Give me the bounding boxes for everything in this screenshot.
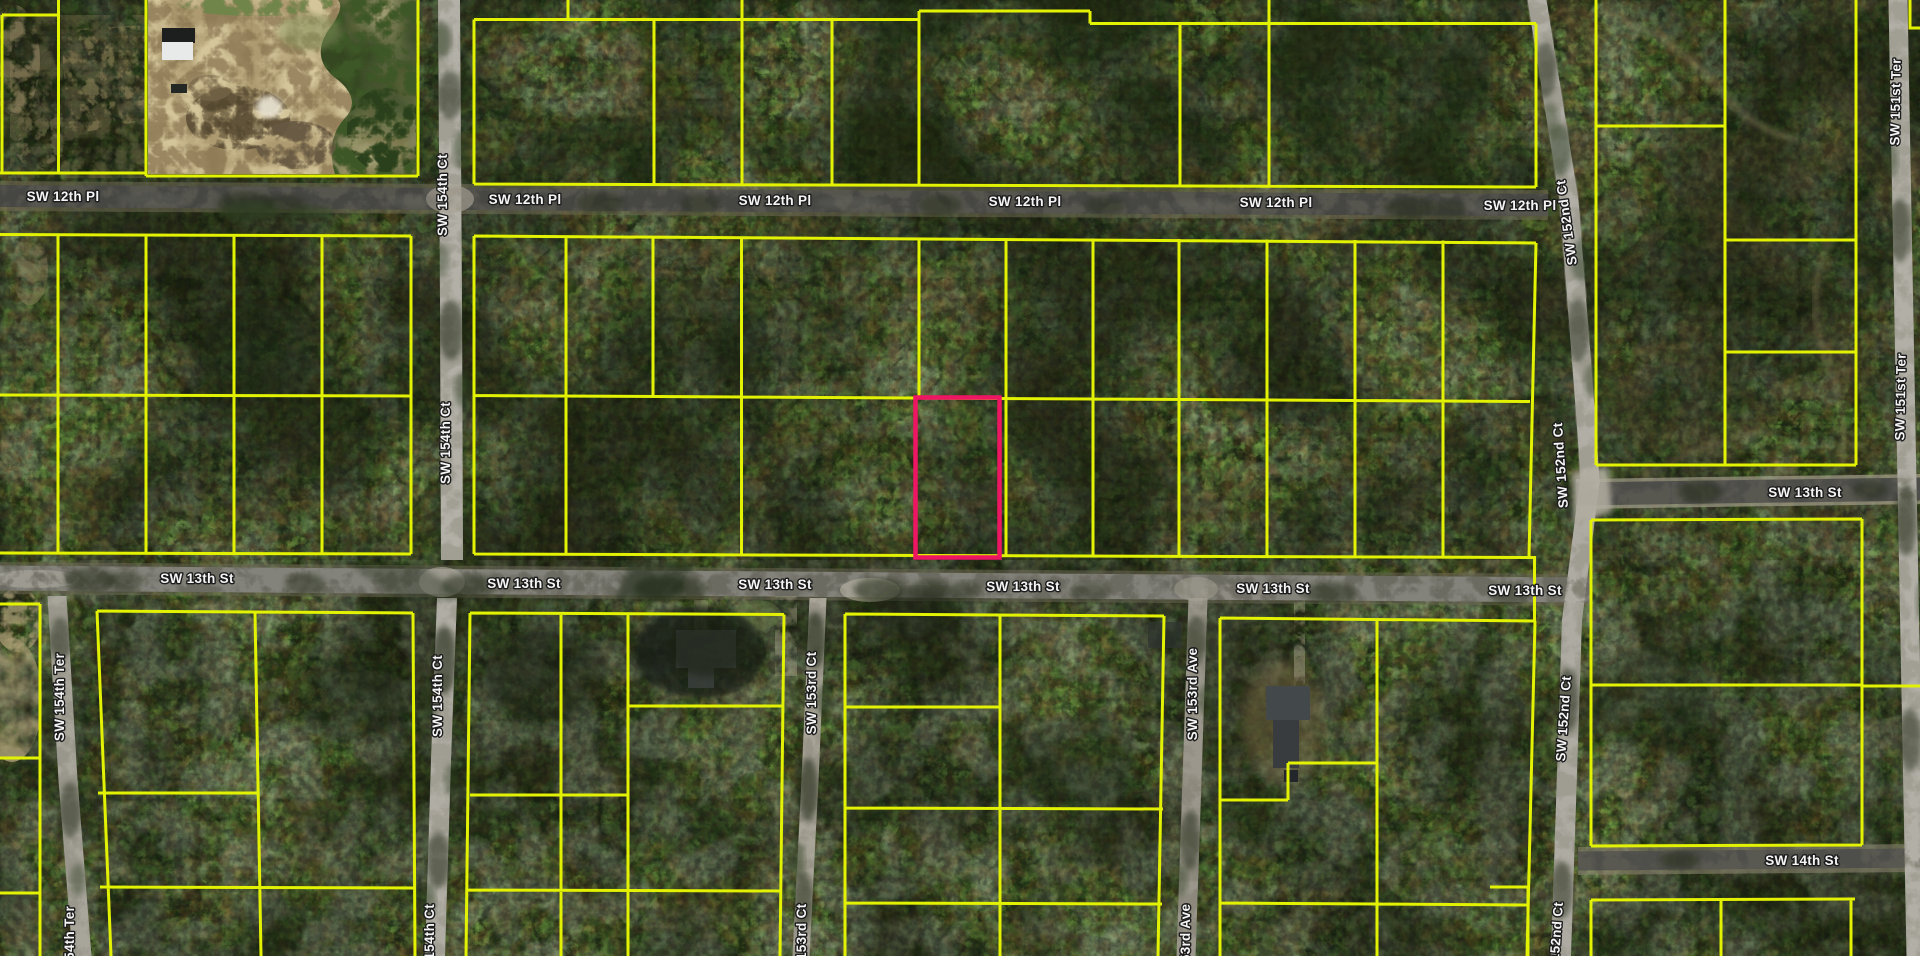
svg-text:SW 12th Pl: SW 12th Pl [989, 194, 1062, 209]
svg-text:SW 13th St: SW 13th St [160, 571, 234, 586]
svg-text:SW 13th St: SW 13th St [1768, 485, 1842, 500]
svg-text:SW 151st Ter: SW 151st Ter [1892, 353, 1909, 441]
svg-text:SW 154th Ct: SW 154th Ct [422, 904, 437, 956]
svg-text:SW 154th Ter: SW 154th Ter [52, 652, 67, 741]
svg-text:SW 153rd Ave: SW 153rd Ave [1178, 903, 1193, 956]
svg-text:SW 154th Ct: SW 154th Ct [435, 154, 450, 236]
svg-text:SW 12th Pl: SW 12th Pl [27, 189, 100, 204]
svg-text:SW 153rd Ct: SW 153rd Ct [794, 903, 809, 956]
svg-text:SW 154th Ct: SW 154th Ct [438, 402, 453, 484]
svg-text:SW 153rd Ave: SW 153rd Ave [1185, 647, 1200, 740]
svg-text:SW 13th St: SW 13th St [1236, 581, 1310, 596]
svg-text:SW 14th St: SW 14th St [1765, 853, 1839, 868]
svg-text:SW 13th St: SW 13th St [738, 577, 812, 592]
svg-text:SW 12th Pl: SW 12th Pl [739, 193, 812, 208]
svg-text:SW 13th St: SW 13th St [487, 576, 561, 591]
svg-text:SW 13th St: SW 13th St [986, 579, 1060, 594]
svg-text:SW 12th Pl: SW 12th Pl [1484, 198, 1557, 213]
svg-text:SW 12th Pl: SW 12th Pl [1240, 195, 1313, 210]
svg-text:SW 12th Pl: SW 12th Pl [489, 192, 562, 207]
svg-text:SW 153rd Ct: SW 153rd Ct [804, 651, 819, 734]
svg-text:SW 151st Ter: SW 151st Ter [1887, 58, 1904, 146]
svg-text:SW 154th Ter: SW 154th Ter [62, 905, 77, 956]
svg-text:SW 154th Ct: SW 154th Ct [430, 655, 445, 737]
svg-text:SW 13th St: SW 13th St [1488, 583, 1562, 598]
